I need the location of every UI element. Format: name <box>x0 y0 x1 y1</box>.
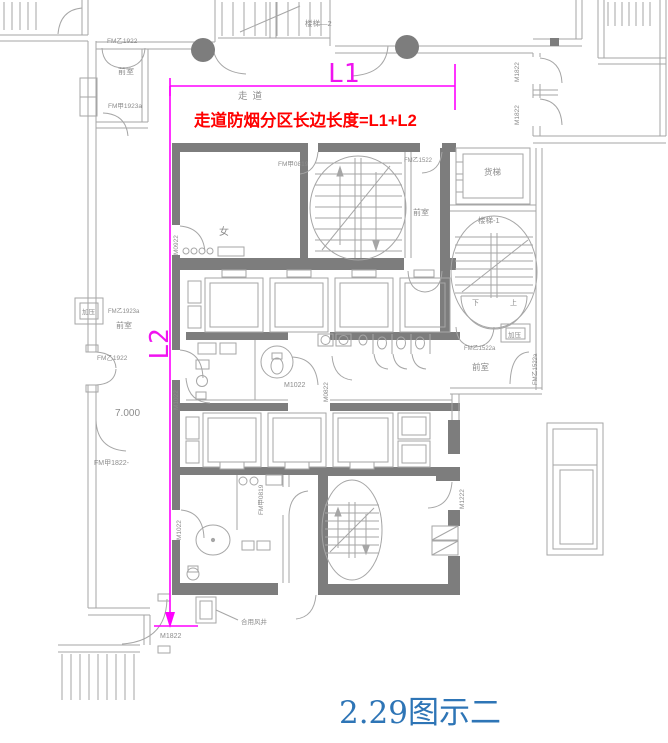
label-qianshi-right: 前室 <box>472 362 490 372</box>
figure-caption: 2.29图示二 <box>339 695 501 731</box>
door-arc <box>212 42 246 74</box>
stair-break-line <box>322 166 390 250</box>
label-m1222: M1222 <box>459 489 466 509</box>
dimension-label-l1: L1 <box>328 59 359 89</box>
stair-hatch-bottom-left <box>62 654 134 700</box>
door-arc-m1822-a <box>540 58 562 83</box>
stair-hatch-top-right <box>608 2 650 26</box>
dimension-label-l2: L2 <box>145 328 175 359</box>
label-m1022-lower: M1022 <box>176 520 183 540</box>
figure-2-29-smoke-zone-plan: FM乙1922 前室 FM甲1923a 楼梯—2 M1822 M1822 女 F… <box>0 0 668 743</box>
stair-upper-ellipse <box>310 156 406 260</box>
label-fm1522-top: FM乙1522 <box>404 157 433 164</box>
label-huoti: 货梯 <box>484 167 502 177</box>
label-fm1522a-h: FM乙1522a <box>464 345 496 352</box>
label-jiaya-right: 加压 <box>508 330 522 339</box>
column <box>395 35 419 59</box>
door-arc <box>58 8 82 34</box>
label-xia: 下 <box>472 299 479 307</box>
stair-hatch-top-left <box>4 2 36 30</box>
stall-doors <box>374 354 426 369</box>
double-door-fm1522a <box>456 327 494 347</box>
door-arc-fm1923a <box>103 113 128 136</box>
stair-lower-treads <box>325 505 379 553</box>
label-fm1923a-mid: FM乙1923a <box>108 308 140 315</box>
label-m0822: M0822 <box>323 382 330 402</box>
label-fm1822: FM甲1822- <box>94 459 130 467</box>
door-arc-m1222 <box>428 482 452 508</box>
label-fm0819-lower: FM甲0819 <box>257 484 265 515</box>
corridor-label: 走道 <box>238 90 267 102</box>
double-door-fm1922-top <box>102 48 145 68</box>
label-fm0819-top: FM甲0819 <box>278 160 309 168</box>
door-arc-bottom <box>296 595 316 619</box>
elevator-doors <box>220 462 374 469</box>
column <box>191 38 215 62</box>
label-fm1923a: FM甲1923a <box>108 102 142 110</box>
door-arc-m0822 <box>332 356 352 380</box>
door-arc-fm1822 <box>96 420 126 451</box>
label-fm1522a-v: FM乙1522a <box>532 353 539 385</box>
label-nv: 女 <box>219 225 229 238</box>
label-qianshi-mid: 前室 <box>413 207 429 217</box>
label-qianshi-top-left: 前室 <box>118 66 134 76</box>
leader-line <box>216 610 238 620</box>
label-m1822-a: M1822 <box>514 62 521 82</box>
label-jiaya-left: 加压 <box>82 307 96 316</box>
stair1-ellipse <box>451 216 537 328</box>
accessible-wc <box>261 346 293 378</box>
label-fm1922-mid: FM乙1922 <box>97 354 128 362</box>
label-qianshi-left-mid: 前室 <box>116 320 132 330</box>
smoke-zone-note: 走道防烟分区长边长度=L1+L2 <box>194 110 417 130</box>
door-arc-right-vestibule <box>510 352 529 384</box>
floor-plan-svg: FM乙1922 前室 FM甲1923a 楼梯—2 M1822 M1822 女 F… <box>0 0 668 743</box>
door-arc-m1022-mid <box>292 357 318 385</box>
door-arc-m1822-b <box>540 99 562 125</box>
label-fm1922-top: FM乙1922 <box>107 37 138 45</box>
label-m1822-bottom: M1822 <box>160 633 182 640</box>
door-arc-fm0819-lower <box>289 491 308 515</box>
label-heyongfengjing: 合用风井 <box>241 617 268 626</box>
label-shang: 上 <box>510 298 517 307</box>
core-interior <box>180 148 603 623</box>
label-m1022-upper: M1022 <box>173 390 180 410</box>
door-arc-m1022-lower <box>181 510 204 538</box>
label-m0922: M0922 <box>173 235 180 255</box>
label-m1022-mid: M1022 <box>284 382 306 389</box>
label-louti2: 楼梯—2 <box>305 18 332 28</box>
label-m1822-b: M1822 <box>514 105 521 125</box>
label-louti1: 楼梯-1 <box>478 215 500 225</box>
label-elevation: 7.000 <box>115 408 140 419</box>
elevator-doors <box>222 270 434 277</box>
stair-break-line <box>462 240 528 292</box>
right-shaft-room <box>547 423 603 555</box>
stair-upper-treads <box>315 163 402 251</box>
